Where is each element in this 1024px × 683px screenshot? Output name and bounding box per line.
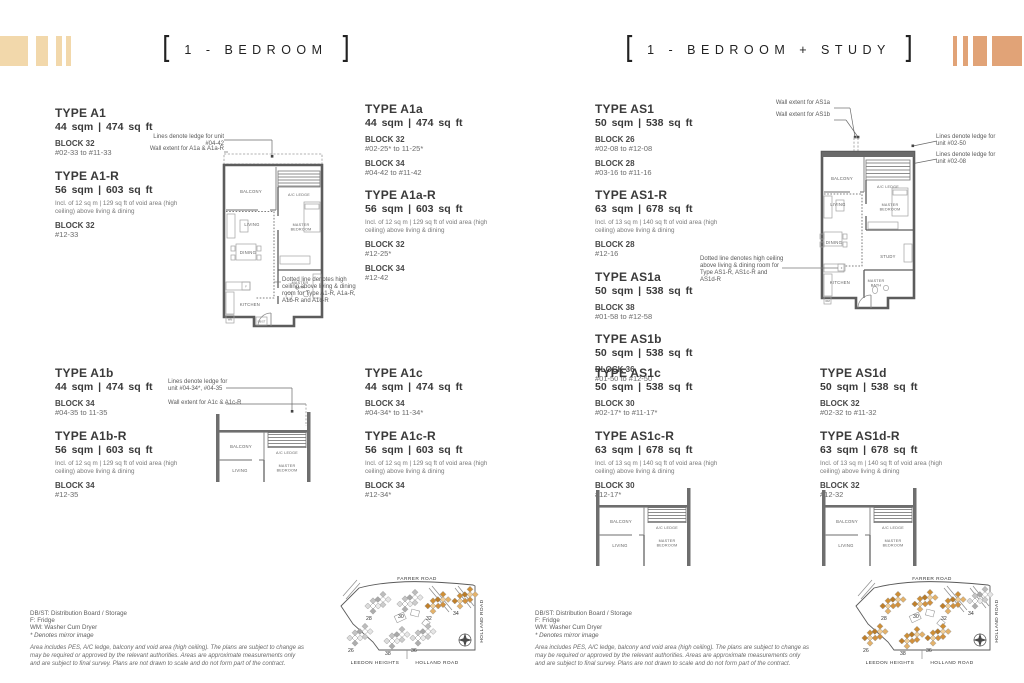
type-area: 50 sqm | 538 sq ft bbox=[595, 285, 760, 298]
unit-type-entry: TYPE A1b-R56 sqm | 603 sq ftIncl. of 12 … bbox=[55, 429, 220, 500]
type-area: 50 sqm | 538 sq ft bbox=[595, 347, 760, 360]
unit-type-entry: TYPE A1c-R56 sqm | 603 sq ftIncl. of 12 … bbox=[365, 429, 530, 500]
map-block-cluster-36: 36 bbox=[925, 623, 951, 654]
type-name: TYPE A1c bbox=[365, 366, 530, 380]
floor-plan-1-bedroom-study: F WM BALCONY A/C LEDGE LIVING DINING STU… bbox=[780, 104, 940, 334]
deco-square bbox=[66, 36, 71, 66]
road-label-leedon: LEEDON HEIGHTS bbox=[866, 660, 915, 666]
deco-square bbox=[992, 36, 1022, 66]
washer-label: WM bbox=[228, 318, 233, 322]
unit-type-column-as1: TYPE AS150 sqm | 538 sq ftBLOCK 26#02-08… bbox=[595, 102, 760, 395]
map-block-cluster-28: 28 bbox=[365, 591, 391, 622]
legend-line: DB/ST: Distribution Board / Storage bbox=[535, 610, 817, 617]
block-range: #12-25* bbox=[365, 250, 530, 259]
unit-type-entry: TYPE A1-R56 sqm | 603 sq ftIncl. of 12 s… bbox=[55, 169, 220, 240]
brochure-page: { "titles": {"bracket_open": "[", "brack… bbox=[0, 0, 1024, 683]
block-name: BLOCK 34 bbox=[55, 481, 220, 490]
deco-square bbox=[36, 36, 48, 66]
type-note: Incl. of 13 sq m | 140 sq ft of void are… bbox=[595, 460, 723, 476]
legend-line: * Denotes mirror image bbox=[30, 632, 312, 639]
type-note: Incl. of 13 sq m | 140 sq ft of void are… bbox=[820, 460, 948, 476]
map-block-cluster-30: 30 bbox=[912, 589, 938, 620]
block-range: #04-34* to 11-34* bbox=[365, 409, 530, 418]
bracket-close: ] bbox=[902, 34, 916, 64]
kitchen-label: KITCHEN bbox=[240, 302, 260, 307]
annotation-wall-as1b: Wall extent for AS1b bbox=[772, 112, 830, 119]
block-range: #03-16 to #11-16 bbox=[595, 169, 760, 178]
block-range: #02-32 to #11-32 bbox=[820, 409, 985, 418]
map-block-cluster-36: 36 bbox=[410, 623, 436, 654]
legend-line: WM: Washer Cum Dryer bbox=[30, 624, 312, 631]
type-note: Incl. of 12 sq m | 129 sq ft of void are… bbox=[55, 200, 183, 216]
map-block-number: 34 bbox=[453, 611, 459, 617]
map-block-number: 32 bbox=[941, 616, 947, 622]
block-name: BLOCK 34 bbox=[365, 159, 530, 168]
type-name: TYPE A1a-R bbox=[365, 188, 530, 202]
block-name: BLOCK 32 bbox=[365, 135, 530, 144]
master-bedroom-label: MASTERBEDROOM bbox=[880, 203, 901, 212]
type-name: TYPE A1c-R bbox=[365, 429, 530, 443]
road-label-leedon: LEEDON HEIGHTS bbox=[351, 660, 400, 666]
type-area: 56 sqm | 603 sq ft bbox=[365, 203, 530, 216]
map-block-cluster-38: 38 bbox=[899, 626, 925, 657]
type-name: TYPE A1 bbox=[55, 106, 220, 120]
deco-square bbox=[963, 36, 968, 66]
legend-right: DB/ST: Distribution Board / StorageF: Fr… bbox=[535, 610, 817, 668]
block-range: #04-35 to 11-35 bbox=[55, 409, 220, 418]
map-block-cluster-38: 38 bbox=[384, 626, 410, 657]
unit-type-entry: TYPE AS1c50 sqm | 538 sq ftBLOCK 30#02-1… bbox=[595, 366, 760, 418]
deco-squares-right bbox=[953, 36, 1022, 66]
type-name: TYPE AS1c-R bbox=[595, 429, 760, 443]
room-label: LIVING bbox=[838, 543, 853, 548]
type-name: TYPE A1a bbox=[365, 102, 530, 116]
map-block-number: 26 bbox=[348, 648, 354, 654]
compass-icon bbox=[973, 633, 987, 647]
deco-square bbox=[0, 36, 28, 66]
bracket-close: ] bbox=[338, 34, 352, 64]
road-label-holland-right: HOLLAND ROAD bbox=[994, 599, 1000, 642]
road-label-holland-bottom: HOLLAND ROAD bbox=[415, 660, 458, 666]
room-label: A/C LEDGE bbox=[882, 526, 904, 530]
ac-ledge-label: A/C LEDGE bbox=[877, 185, 899, 189]
unit-type-entry: TYPE A1a44 sqm | 474 sq ftBLOCK 32#02-25… bbox=[365, 102, 530, 177]
map-block-number: 36 bbox=[926, 648, 932, 654]
type-name: TYPE AS1d bbox=[820, 366, 985, 380]
page-title: 1 - BEDROOM + STUDY bbox=[647, 41, 891, 57]
road-label-farrer: FARRER ROAD bbox=[397, 576, 437, 582]
block-range: #02-08 to #12-08 bbox=[595, 145, 760, 154]
map-block-cluster-32: 32 bbox=[425, 591, 451, 622]
block-range: #02-17* to #11-17* bbox=[595, 409, 760, 418]
annotation-dotted-as1: Dotted line denotes high ceiling above l… bbox=[700, 256, 784, 284]
map-block-cluster-34: 34 bbox=[452, 586, 478, 617]
block-range: #12-35 bbox=[55, 491, 220, 500]
bracket-open: [ bbox=[622, 34, 636, 64]
block-range: #12-34* bbox=[365, 491, 530, 500]
map-block-number: 30 bbox=[398, 614, 404, 620]
type-area: 63 sqm | 678 sq ft bbox=[595, 203, 760, 216]
annotation-wall-a1a: Wall extent for A1a & A1a-R bbox=[146, 146, 224, 153]
block-range: #02-25* to 11-25* bbox=[365, 145, 530, 154]
map-block-number: 28 bbox=[366, 616, 372, 622]
master-bedroom-label: MASTERBEDROOM bbox=[291, 223, 312, 232]
legend-line: DB/ST: Distribution Board / Storage bbox=[30, 610, 312, 617]
room-label: LIVING bbox=[612, 543, 627, 548]
partial-plan-as1c: BALCONYA/C LEDGELIVINGMASTERBEDROOM bbox=[592, 486, 696, 566]
block-name: BLOCK 34 bbox=[365, 399, 530, 408]
room-label: MASTERBEDROOM bbox=[657, 539, 678, 548]
type-name: TYPE AS1 bbox=[595, 102, 760, 116]
type-area: 50 sqm | 538 sq ft bbox=[595, 117, 760, 130]
deco-square bbox=[973, 36, 987, 66]
unit-type-entry: TYPE A1a-R56 sqm | 603 sq ftIncl. of 12 … bbox=[365, 188, 530, 282]
type-area: 56 sqm | 603 sq ft bbox=[55, 444, 220, 457]
room-label: BALCONY bbox=[230, 444, 252, 449]
room-label: MASTERBEDROOM bbox=[277, 464, 298, 473]
unit-type-column-a1: TYPE A144 sqm | 474 sq ftBLOCK 32#02-33 … bbox=[55, 106, 220, 250]
map-block-number: 26 bbox=[863, 648, 869, 654]
annotation-ledge-0250: Lines denote ledge for unit #02-50 bbox=[936, 134, 996, 148]
legend-line: F: Fridge bbox=[30, 617, 312, 624]
map-block-number: 36 bbox=[411, 648, 417, 654]
site-map-right: FARRER ROAD HOLLAND ROAD LEEDON HEIGHTS … bbox=[848, 566, 1008, 671]
ac-ledge-label: A/C LEDGE bbox=[288, 193, 310, 197]
annotation-ledge-0208: Lines denote ledge for unit #02-08 bbox=[936, 152, 996, 166]
type-note: Incl. of 13 sq m | 140 sq ft of void are… bbox=[595, 219, 723, 235]
block-range: #01-58 to #12-58 bbox=[595, 313, 760, 322]
legend-line: WM: Washer Cum Dryer bbox=[535, 624, 817, 631]
unit-type-entry: TYPE AS1-R63 sqm | 678 sq ftIncl. of 13 … bbox=[595, 188, 760, 259]
block-name: BLOCK 32 bbox=[365, 240, 530, 249]
room-label: BALCONY bbox=[836, 519, 858, 524]
type-name: TYPE AS1d-R bbox=[820, 429, 985, 443]
deco-squares-left bbox=[0, 36, 71, 66]
partial-plan-as1d: BALCONYA/C LEDGELIVINGMASTERBEDROOM bbox=[818, 486, 922, 566]
room-label: LIVING bbox=[232, 468, 247, 473]
block-name: BLOCK 28 bbox=[595, 240, 760, 249]
road-label-farrer: FARRER ROAD bbox=[912, 576, 952, 582]
legend-left: DB/ST: Distribution Board / StorageF: Fr… bbox=[30, 610, 312, 668]
block-name: BLOCK 34 bbox=[365, 264, 530, 273]
type-area: 50 sqm | 538 sq ft bbox=[595, 381, 760, 394]
room-label: A/C LEDGE bbox=[276, 451, 298, 455]
unit-type-column-a1a: TYPE A1a44 sqm | 474 sq ftBLOCK 32#02-25… bbox=[365, 102, 530, 293]
site-map-left: FARRER ROAD HOLLAND ROAD LEEDON HEIGHTS … bbox=[333, 566, 493, 671]
block-name: BLOCK 32 bbox=[55, 221, 220, 230]
map-block-number: 32 bbox=[426, 616, 432, 622]
balcony-label: BALCONY bbox=[831, 176, 853, 181]
type-area: 56 sqm | 603 sq ft bbox=[365, 444, 530, 457]
type-note: Incl. of 12 sq m | 129 sq ft of void are… bbox=[55, 460, 183, 476]
room-label: MASTERBEDROOM bbox=[883, 539, 904, 548]
section-title-1-bedroom-study: [ 1 - BEDROOM + STUDY ] bbox=[664, 34, 874, 64]
study-label: STUDY bbox=[880, 254, 895, 259]
bracket-open: [ bbox=[159, 34, 173, 64]
living-label: LIVING bbox=[830, 202, 845, 207]
living-label: LIVING bbox=[244, 222, 259, 227]
block-name: BLOCK 32 bbox=[820, 399, 985, 408]
block-name: BLOCK 28 bbox=[595, 159, 760, 168]
block-range: #12-33 bbox=[55, 231, 220, 240]
type-note: Incl. of 12 sq m | 129 sq ft of void are… bbox=[365, 460, 493, 476]
map-block-cluster-30: 30 bbox=[397, 589, 423, 620]
type-area: 50 sqm | 538 sq ft bbox=[820, 381, 985, 394]
type-area: 44 sqm | 474 sq ft bbox=[55, 121, 220, 134]
block-range: #12-42 bbox=[365, 274, 530, 283]
annotation-ledge-a1bc: Lines denote ledge for unit #04-34*, #04… bbox=[168, 379, 228, 393]
dining-label: DINING bbox=[826, 240, 842, 245]
unit-type-entry: TYPE AS1d50 sqm | 538 sq ftBLOCK 32#02-3… bbox=[820, 366, 985, 418]
compass-icon bbox=[458, 633, 472, 647]
map-block-cluster-28: 28 bbox=[880, 591, 906, 622]
section-title-1-bedroom: [ 1 - BEDROOM ] bbox=[183, 34, 329, 64]
room-label: BALCONY bbox=[610, 519, 632, 524]
unit-type-entry: TYPE AS150 sqm | 538 sq ftBLOCK 26#02-08… bbox=[595, 102, 760, 177]
type-note: Incl. of 12 sq m | 129 sq ft of void are… bbox=[365, 219, 493, 235]
map-block-cluster-32: 32 bbox=[940, 591, 966, 622]
type-area: 44 sqm | 474 sq ft bbox=[365, 117, 530, 130]
type-name: TYPE A1-R bbox=[55, 169, 220, 183]
page-title: 1 - BEDROOM bbox=[184, 41, 327, 57]
block-name: BLOCK 26 bbox=[595, 135, 760, 144]
unit-type-column-a1c: TYPE A1c44 sqm | 474 sq ftBLOCK 34#04-34… bbox=[365, 366, 530, 510]
type-name: TYPE AS1b bbox=[595, 332, 760, 346]
legend-line: F: Fridge bbox=[535, 617, 817, 624]
balcony-label: BALCONY bbox=[240, 189, 262, 194]
deco-square bbox=[953, 36, 957, 66]
map-block-number: 30 bbox=[913, 614, 919, 620]
annotation-wall-a1c: Wall extent for A1c & A1c-R bbox=[168, 400, 248, 407]
annotation-wall-as1a: Wall extent for AS1a bbox=[772, 100, 830, 107]
unit-type-entry: TYPE A1c44 sqm | 474 sq ftBLOCK 34#04-34… bbox=[365, 366, 530, 418]
legend-disclaimer: Area includes PES, A/C ledge, balcony an… bbox=[30, 644, 306, 668]
type-name: TYPE AS1-R bbox=[595, 188, 760, 202]
map-block-cluster-34: 34 bbox=[967, 586, 993, 617]
type-area: 44 sqm | 474 sq ft bbox=[365, 381, 530, 394]
type-area: 56 sqm | 603 sq ft bbox=[55, 184, 220, 197]
legend-disclaimer: Area includes PES, A/C ledge, balcony an… bbox=[535, 644, 811, 668]
map-block-number: 28 bbox=[881, 616, 887, 622]
type-area: 63 sqm | 678 sq ft bbox=[820, 444, 985, 457]
type-name: TYPE AS1c bbox=[595, 366, 760, 380]
deco-square bbox=[56, 36, 62, 66]
block-name: BLOCK 34 bbox=[365, 481, 530, 490]
washer-label: WM bbox=[825, 299, 830, 303]
annotation-dotted-a1: Dotted line denotes high ceiling above l… bbox=[282, 277, 358, 305]
map-block-number: 38 bbox=[900, 651, 906, 657]
road-label-holland-right: HOLLAND ROAD bbox=[479, 599, 485, 642]
block-name: BLOCK 38 bbox=[595, 303, 760, 312]
type-name: TYPE A1b bbox=[55, 366, 220, 380]
kitchen-label: KITCHEN bbox=[830, 280, 850, 285]
room-label: A/C LEDGE bbox=[656, 526, 678, 530]
legend-line: * Denotes mirror image bbox=[535, 632, 817, 639]
road-label-holland-bottom: HOLLAND ROAD bbox=[930, 660, 973, 666]
map-block-number: 34 bbox=[968, 611, 974, 617]
type-name: TYPE A1b-R bbox=[55, 429, 220, 443]
block-range: #04-42 to #11-42 bbox=[365, 169, 530, 178]
block-name: BLOCK 30 bbox=[595, 399, 760, 408]
map-block-number: 38 bbox=[385, 651, 391, 657]
type-area: 63 sqm | 678 sq ft bbox=[595, 444, 760, 457]
dining-label: DINING bbox=[240, 250, 256, 255]
